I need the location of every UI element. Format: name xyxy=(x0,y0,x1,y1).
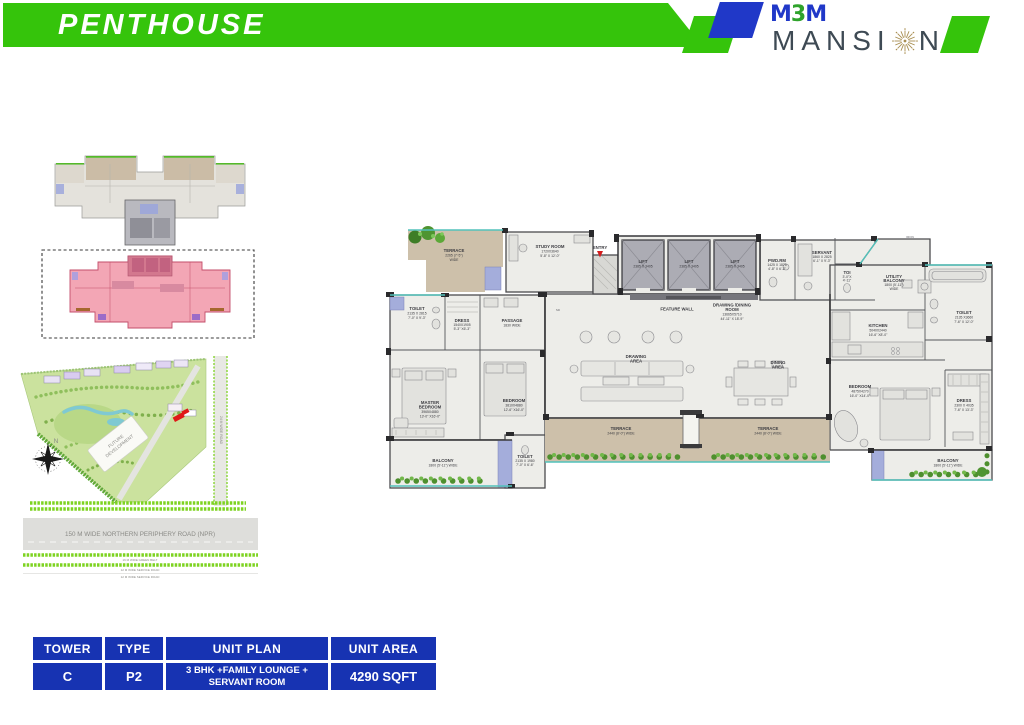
svg-text:2385 X 3405: 2385 X 3405 xyxy=(679,265,698,269)
svg-text:44'-11" X 18'-9": 44'-11" X 18'-9" xyxy=(720,317,744,321)
svg-text:2440 (8'-0") WIDE: 2440 (8'-0") WIDE xyxy=(607,432,635,436)
site-map: FUTURE DEVELOPMENT 24 M WIDE ROAD N 150 … xyxy=(18,352,263,587)
unit-summary-table: TOWER TYPE UNIT PLAN UNIT AREA C P2 3 BH… xyxy=(33,637,436,690)
brochure-page: PENTHOUSE M3M MANSI N xyxy=(0,0,1024,725)
svg-text:KITCHEN: KITCHEN xyxy=(868,323,887,328)
svg-text:BEDROOM: BEDROOM xyxy=(419,405,442,410)
entry-foyer xyxy=(593,255,618,294)
svg-text:16'-6" X8'-0": 16'-6" X8'-0" xyxy=(869,333,888,337)
header-tower: TOWER xyxy=(33,637,102,660)
study-desk xyxy=(509,235,518,261)
value-unit-area: 4290 SQFT xyxy=(331,663,436,690)
svg-text:ROOM: ROOM xyxy=(725,307,739,312)
svg-text:1800 (5'-11") WIDE: 1800 (5'-11") WIDE xyxy=(934,464,964,468)
svg-text:BALCONY: BALCONY xyxy=(937,458,958,463)
svg-text:BALCONY: BALCONY xyxy=(432,458,453,463)
svg-text:13'-0" X16'-0": 13'-0" X16'-0" xyxy=(420,415,441,419)
unit-plan-line-1: 3 BHK +FAMILY LOUNGE + xyxy=(186,665,308,676)
svg-text:4'-11": 4'-11" xyxy=(843,279,852,283)
svg-text:7'-0" X 9'-3": 7'-0" X 9'-3" xyxy=(408,316,426,320)
value-unit-plan: 3 BHK +FAMILY LOUNGE + SERVANT ROOM xyxy=(166,663,328,690)
svg-text:TOILET: TOILET xyxy=(409,306,425,311)
green-belt-label: 16 M WIDE GREEN BELT xyxy=(123,558,158,562)
svg-text:TERRACE: TERRACE xyxy=(444,248,465,253)
svg-text:WIDE: WIDE xyxy=(890,287,900,291)
logo-green-parallelogram-right xyxy=(940,16,990,53)
svg-text:3965X4880: 3965X4880 xyxy=(421,410,438,414)
service-road-1-label: 12 M WIDE SERVICE ROAD xyxy=(121,568,161,572)
washing-machine xyxy=(918,280,931,293)
svg-text:AREA: AREA xyxy=(772,365,784,370)
svg-text:13665X5710: 13665X5710 xyxy=(722,313,741,317)
logo-blue-parallelogram xyxy=(708,2,764,38)
mansion-text-left: MANSI xyxy=(772,27,891,55)
penthouse-banner: PENTHOUSE xyxy=(3,3,703,47)
svg-text:2265 (7'-5"): 2265 (7'-5") xyxy=(445,254,463,258)
svg-text:STUDY ROOM: STUDY ROOM xyxy=(535,244,564,249)
side-road-label: 24 M WIDE ROAD xyxy=(219,416,223,445)
dining-table xyxy=(734,368,788,396)
svg-text:IRON: IRON xyxy=(906,235,914,239)
svg-text:LIFT: LIFT xyxy=(638,259,647,264)
sofa-2 xyxy=(581,387,683,401)
svg-text:7'-0" X 6'-6": 7'-0" X 6'-6" xyxy=(516,463,534,467)
svg-text:2135 X3660: 2135 X3660 xyxy=(955,316,973,320)
service-road-2-label: 12 M WIDE SERVICE ROAD xyxy=(121,575,161,579)
svg-text:2440 (8'-0") WIDE: 2440 (8'-0") WIDE xyxy=(754,432,782,436)
floor-plan: ENTRY TERRACE 2265 (7'-5") WIDE STUDY RO… xyxy=(378,222,998,494)
svg-text:7'-6" X 13'-3": 7'-6" X 13'-3" xyxy=(954,408,974,412)
svg-text:4875X4270: 4875X4270 xyxy=(851,390,868,394)
value-tower: C xyxy=(33,663,102,690)
svg-text:AREA: AREA xyxy=(630,359,642,364)
svg-text:12'-6" X16'-0": 12'-6" X16'-0" xyxy=(504,408,525,412)
npr-road-label: 150 M WIDE NORTHERN PERIPHERY ROAD (NPR) xyxy=(65,531,215,538)
svg-text:3810X4880: 3810X4880 xyxy=(505,404,522,408)
svg-text:16'-0" X14'-0": 16'-0" X14'-0" xyxy=(850,394,871,398)
svg-text:TERRACE: TERRACE xyxy=(611,426,632,431)
planter-left xyxy=(498,440,512,487)
wc-top-left xyxy=(432,319,440,329)
svg-text:TERRACE: TERRACE xyxy=(758,426,779,431)
svg-text:4'-8" X 6'-2": 4'-8" X 6'-2" xyxy=(768,267,786,271)
key-plan xyxy=(40,148,260,348)
svg-text:2385 X 3405: 2385 X 3405 xyxy=(633,265,652,269)
svg-text:5'-8" X 12'-0": 5'-8" X 12'-0" xyxy=(540,254,560,258)
svg-text:2300 X 4035: 2300 X 4035 xyxy=(954,404,973,408)
kitchen-counter xyxy=(832,342,923,357)
svg-text:FEATURE WALL: FEATURE WALL xyxy=(660,307,694,312)
svg-text:1830 WIDE: 1830 WIDE xyxy=(503,324,521,328)
svg-text:LIFT: LIFT xyxy=(730,259,739,264)
svg-text:5'-3" X6'-3": 5'-3" X6'-3" xyxy=(454,327,472,331)
svg-text:DRESS: DRESS xyxy=(957,398,972,403)
fridge xyxy=(908,312,923,328)
shower-top-left xyxy=(390,297,404,310)
svg-text:BEDROOM: BEDROOM xyxy=(503,398,526,403)
planter-right xyxy=(872,450,884,480)
svg-text:1800 (5'-11") WIDE: 1800 (5'-11") WIDE xyxy=(429,464,459,468)
svg-text:5040X2440: 5040X2440 xyxy=(869,329,886,333)
north-label: N xyxy=(54,438,59,445)
header-unit-plan: UNIT PLAN xyxy=(166,637,328,660)
mansion-text-right: N xyxy=(919,27,945,55)
mansion-logo-text: MANSI N xyxy=(772,27,945,55)
armchair xyxy=(580,331,592,343)
header-unit-area: UNIT AREA xyxy=(331,637,436,660)
unit-plan-line-2: SERVANT ROOM xyxy=(209,677,286,688)
svg-text:2135 X 2815: 2135 X 2815 xyxy=(407,312,426,316)
svg-text:6'-1" X 9'-3": 6'-1" X 9'-3" xyxy=(813,259,831,263)
svg-text:TOILET: TOILET xyxy=(956,310,972,315)
svg-text:PASSAGE: PASSAGE xyxy=(502,318,523,323)
bathtub xyxy=(929,269,986,282)
svg-text:2385 X 3405: 2385 X 3405 xyxy=(725,265,744,269)
svg-text:1720X3640: 1720X3640 xyxy=(541,250,558,254)
starburst-icon xyxy=(892,28,918,54)
svg-text:LIFT: LIFT xyxy=(684,259,693,264)
entry-label: ENTRY xyxy=(593,245,608,250)
svg-text:WIDE: WIDE xyxy=(450,258,460,262)
servant-bed xyxy=(798,244,812,276)
planter-terrace xyxy=(485,267,501,290)
header-type: TYPE xyxy=(105,637,163,660)
wc-powder xyxy=(769,277,777,287)
svg-text:BEDROOM: BEDROOM xyxy=(849,384,872,389)
m3m-logo-text: M3M xyxy=(770,4,826,26)
svg-text:7'-6" X 12'-0": 7'-6" X 12'-0" xyxy=(954,320,974,324)
value-type: P2 xyxy=(105,663,163,690)
page-title: PENTHOUSE xyxy=(3,9,265,42)
wc-toi xyxy=(844,284,851,293)
wc-top-right xyxy=(930,299,938,309)
